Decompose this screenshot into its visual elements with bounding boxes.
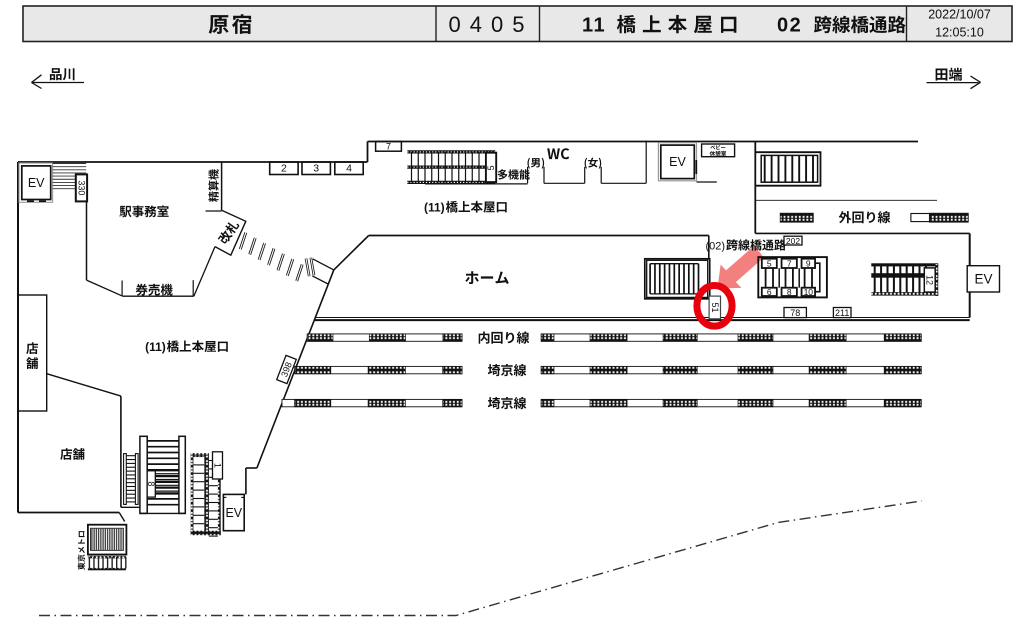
svg-text:8: 8 xyxy=(146,481,156,486)
svg-text:78: 78 xyxy=(790,308,800,318)
svg-text:9: 9 xyxy=(806,259,811,269)
svg-text:EV: EV xyxy=(28,176,45,190)
svg-text:EV: EV xyxy=(974,272,992,287)
svg-text:3: 3 xyxy=(313,163,319,175)
svg-text:0405: 0405 xyxy=(449,12,534,37)
svg-text:(11): (11) xyxy=(145,340,166,354)
svg-text:11: 11 xyxy=(582,15,606,37)
svg-text:(11): (11) xyxy=(424,201,445,215)
svg-text:6: 6 xyxy=(767,287,772,297)
svg-text:8: 8 xyxy=(787,287,792,297)
svg-text:12:05:10: 12:05:10 xyxy=(935,26,984,40)
svg-text:7: 7 xyxy=(787,259,792,269)
svg-text:12: 12 xyxy=(925,275,935,285)
svg-text:5: 5 xyxy=(767,259,772,269)
svg-text:5: 5 xyxy=(486,165,496,170)
svg-text:51: 51 xyxy=(710,302,720,312)
svg-text:EV: EV xyxy=(225,506,242,520)
svg-text:211: 211 xyxy=(835,308,849,318)
svg-text:10: 10 xyxy=(804,287,814,297)
svg-text:02: 02 xyxy=(777,15,802,37)
svg-text:1: 1 xyxy=(213,463,223,468)
svg-text:202: 202 xyxy=(786,236,800,246)
svg-text:EV: EV xyxy=(669,155,686,169)
svg-text:4: 4 xyxy=(346,163,352,175)
svg-text:2022/10/07: 2022/10/07 xyxy=(928,8,991,22)
svg-text:7: 7 xyxy=(386,142,391,152)
svg-text:(02): (02) xyxy=(706,241,726,253)
svg-text:330: 330 xyxy=(77,180,87,195)
svg-text:2: 2 xyxy=(281,163,287,175)
